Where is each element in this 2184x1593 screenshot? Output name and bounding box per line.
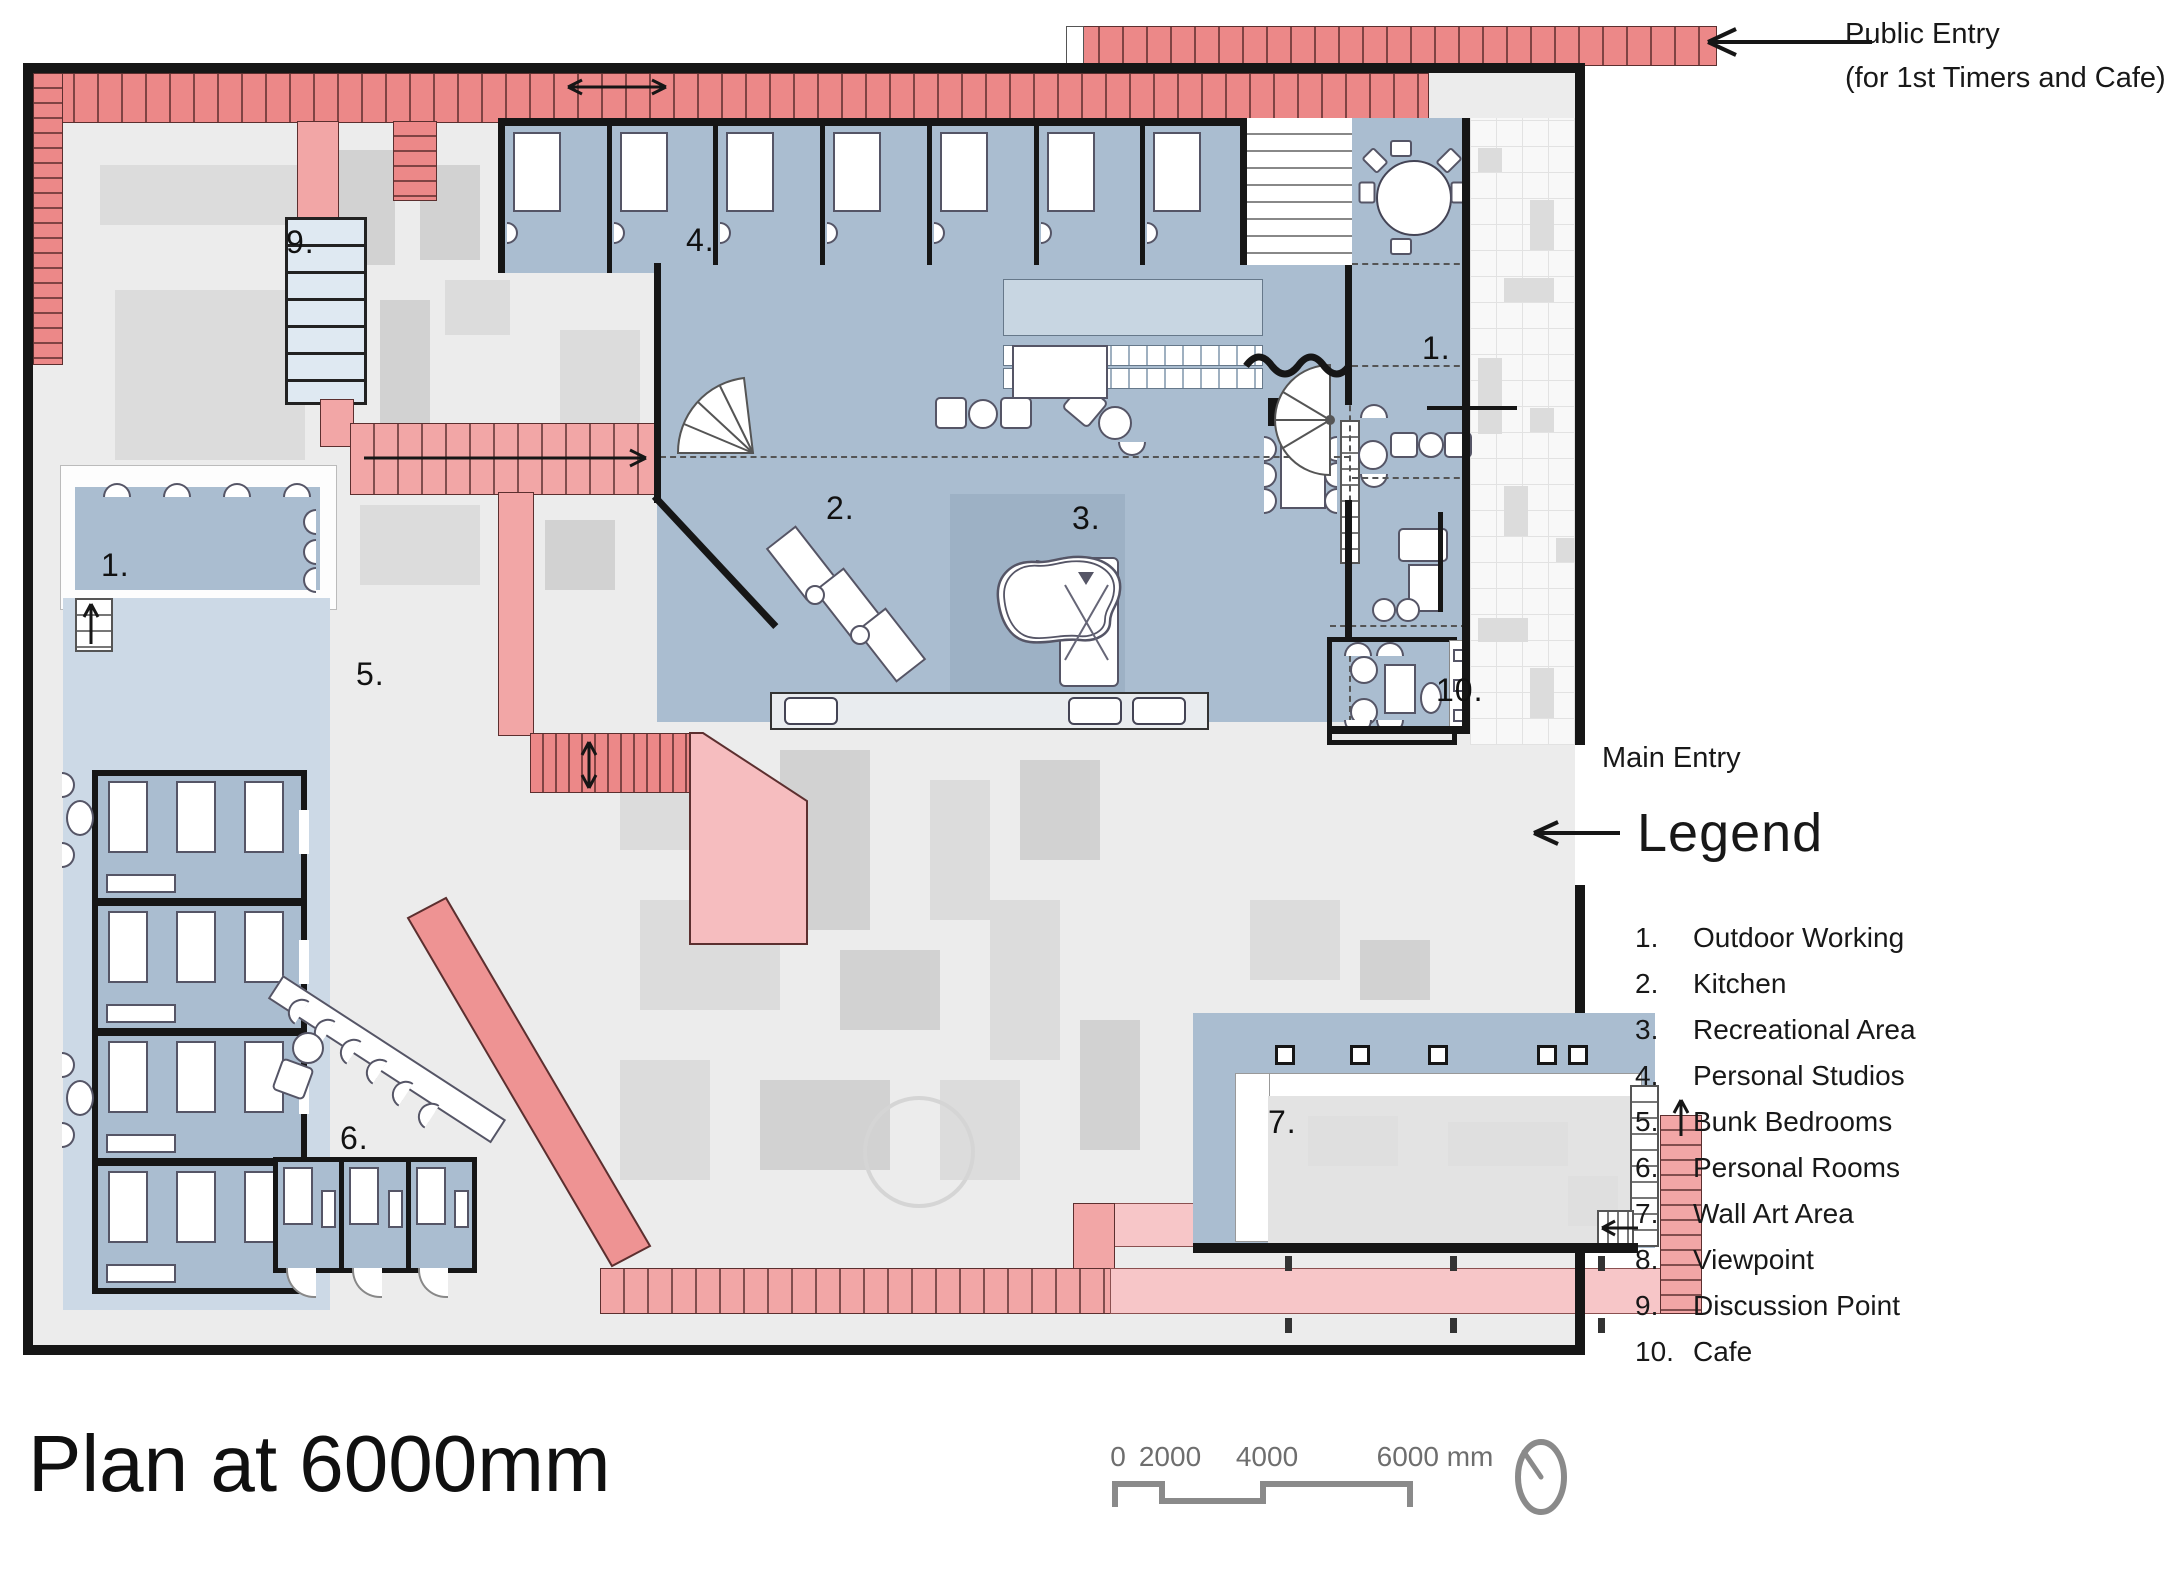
bed-icon bbox=[176, 1171, 216, 1243]
dresser-icon bbox=[106, 1264, 176, 1283]
legend-item-label: Personal Rooms bbox=[1693, 1152, 1900, 1198]
bed-icon bbox=[176, 781, 216, 853]
legend-item-number: 7. bbox=[1635, 1198, 1693, 1244]
scale-tick-label: 4000 bbox=[1236, 1441, 1298, 1473]
long-table bbox=[1003, 279, 1263, 336]
area-label: 5. bbox=[356, 656, 385, 693]
area-label: 1. bbox=[101, 547, 130, 584]
studio-room bbox=[1145, 126, 1247, 273]
context-shape bbox=[990, 900, 1060, 1060]
bunk-bedroom bbox=[92, 1030, 307, 1164]
area-label: 6. bbox=[340, 1120, 369, 1157]
walkway-steps bbox=[1066, 26, 1084, 66]
area-label: 4. bbox=[686, 222, 715, 259]
area-label: 8. bbox=[732, 860, 761, 897]
scale-bar bbox=[1115, 1484, 1410, 1507]
context-shape bbox=[780, 750, 870, 930]
dresser-icon bbox=[106, 1004, 176, 1023]
personal-rooms bbox=[273, 1157, 477, 1273]
legend-item-label: Discussion Point bbox=[1693, 1290, 1900, 1336]
stool-icon bbox=[850, 625, 870, 645]
public-entry-walkway bbox=[1075, 26, 1717, 66]
table-icon bbox=[66, 800, 94, 836]
sink-icon bbox=[827, 222, 838, 244]
column-tick bbox=[1285, 1256, 1292, 1271]
car-icon bbox=[1132, 697, 1186, 725]
north-indicator-icon bbox=[1518, 1442, 1564, 1512]
context-shape bbox=[620, 1060, 710, 1180]
personal-studios bbox=[498, 118, 1247, 273]
legend-item-number: 10. bbox=[1635, 1336, 1693, 1382]
bunk-bedroom bbox=[92, 900, 307, 1034]
main-entry-label: Main Entry bbox=[1602, 742, 1741, 775]
chair-icon bbox=[303, 539, 316, 565]
context-shape bbox=[930, 780, 990, 920]
bed-icon bbox=[108, 781, 148, 853]
table-icon bbox=[292, 1032, 324, 1064]
column-tick bbox=[1598, 1318, 1605, 1333]
legend-item: 7. Wall Art Area bbox=[1635, 1198, 2155, 1244]
context-shape bbox=[445, 280, 510, 335]
context-shape bbox=[1080, 1020, 1140, 1150]
personal-room bbox=[411, 1162, 472, 1268]
table-icon bbox=[1418, 432, 1444, 458]
legend-item-label: Viewpoint bbox=[1693, 1244, 1814, 1290]
bed-icon bbox=[176, 911, 216, 983]
door-gap bbox=[299, 940, 309, 984]
legend-item: 1. Outdoor Working bbox=[1635, 922, 2155, 968]
bed-icon bbox=[513, 132, 561, 212]
bed-icon bbox=[176, 1041, 216, 1113]
armchair-icon bbox=[935, 397, 967, 429]
car-icon bbox=[784, 697, 838, 725]
legend-item-number: 8. bbox=[1635, 1244, 1693, 1290]
chair-icon bbox=[1376, 642, 1404, 656]
car-icon bbox=[1068, 697, 1122, 725]
wall-segment bbox=[1327, 726, 1470, 734]
armchair-icon bbox=[1000, 397, 1032, 429]
legend-item: 3. Recreational Area bbox=[1635, 1014, 2155, 1060]
area-label: 1. bbox=[1422, 330, 1451, 367]
wall-art-wall bbox=[1193, 1243, 1638, 1253]
legend-item: 5. Bunk Bedrooms bbox=[1635, 1106, 2155, 1152]
column-tick bbox=[1450, 1318, 1457, 1333]
building-border-top bbox=[23, 63, 1585, 73]
legend-item-number: 5. bbox=[1635, 1106, 1693, 1152]
bed-icon bbox=[940, 132, 988, 212]
context-shape bbox=[1360, 940, 1430, 1000]
chair-icon bbox=[1390, 238, 1412, 255]
legend-item: 2. Kitchen bbox=[1635, 968, 2155, 1014]
column-tick bbox=[1598, 1256, 1605, 1271]
seat-icon bbox=[1390, 432, 1418, 458]
grid-cell bbox=[1530, 668, 1554, 718]
zone-dashed-line bbox=[1352, 365, 1470, 367]
bed-icon bbox=[244, 781, 284, 853]
table-icon bbox=[66, 1080, 94, 1116]
building-border-right bbox=[1575, 1248, 1585, 1355]
dresser-icon bbox=[106, 874, 176, 893]
legend-item-label: Personal Studios bbox=[1693, 1060, 1905, 1106]
stair-flight bbox=[393, 121, 437, 201]
legend-item-number: 4. bbox=[1635, 1060, 1693, 1106]
area-label: 10. bbox=[1436, 672, 1483, 709]
context-shape bbox=[640, 900, 780, 1010]
door-gap bbox=[299, 810, 309, 854]
page: 9.4.1.2.3.1.5.10.8.6.7. Public Entry (fo… bbox=[0, 0, 2184, 1593]
grid-cell bbox=[1504, 278, 1554, 302]
column-icon bbox=[1568, 1045, 1588, 1065]
dresser-icon bbox=[106, 1134, 176, 1153]
top-corridor bbox=[50, 73, 1429, 123]
column-tick bbox=[1285, 1318, 1292, 1333]
wall-segment bbox=[654, 263, 661, 503]
coffee-table-icon bbox=[968, 399, 998, 429]
area-label: 7. bbox=[1268, 1104, 1297, 1141]
bed-icon bbox=[108, 1171, 148, 1243]
zone-dashed-line bbox=[1352, 477, 1470, 479]
bed-icon bbox=[833, 132, 881, 212]
wall-art-court bbox=[1268, 1096, 1635, 1245]
sink-icon bbox=[934, 222, 945, 244]
legend-item-label: Outdoor Working bbox=[1693, 922, 1904, 968]
bunk-bedroom bbox=[92, 770, 307, 904]
main-stair bbox=[1240, 118, 1359, 265]
column-icon bbox=[1350, 1045, 1370, 1065]
legend-item-label: Cafe bbox=[1693, 1336, 1752, 1382]
column-tick bbox=[1450, 1256, 1457, 1271]
outdoor-working-room bbox=[1352, 118, 1470, 265]
context-circle bbox=[863, 1096, 975, 1208]
corner-stair bbox=[1597, 1210, 1634, 1247]
legend-list: 1. Outdoor Working 2. Kitchen 3. Recreat… bbox=[1635, 922, 2155, 1382]
legend-item-label: Kitchen bbox=[1693, 968, 1786, 1014]
walkway-stair bbox=[75, 598, 113, 652]
cafe-table bbox=[1384, 664, 1416, 714]
column-icon bbox=[1275, 1045, 1295, 1065]
personal-room bbox=[278, 1162, 344, 1268]
legend-item-label: Bunk Bedrooms bbox=[1693, 1106, 1892, 1152]
corridor-link bbox=[297, 121, 339, 219]
stool-icon bbox=[1372, 598, 1396, 622]
grid-cell bbox=[1478, 358, 1502, 434]
bed-icon bbox=[244, 911, 284, 983]
studio-room bbox=[718, 126, 825, 273]
area-label: 2. bbox=[826, 490, 855, 527]
context-shape bbox=[360, 505, 480, 585]
legend-item: 10. Cafe bbox=[1635, 1336, 2155, 1382]
legend-item-label: Wall Art Area bbox=[1693, 1198, 1854, 1244]
bed-icon bbox=[349, 1167, 379, 1225]
left-corridor bbox=[33, 73, 63, 365]
studio-room bbox=[825, 126, 932, 273]
parking-strip bbox=[770, 692, 1209, 730]
scale-tick-label: 0 bbox=[1110, 1441, 1126, 1473]
corridor-west bbox=[350, 423, 664, 495]
cafe-table-icon bbox=[1350, 656, 1378, 684]
column-icon bbox=[1428, 1045, 1448, 1065]
context-shape bbox=[840, 950, 940, 1030]
corridor-south-east bbox=[1110, 1268, 1702, 1314]
building-border-left bbox=[23, 63, 33, 1355]
chair-icon bbox=[1390, 140, 1412, 157]
bed-icon bbox=[108, 1041, 148, 1113]
page-title: Plan at 6000mm bbox=[28, 1418, 611, 1510]
personal-room bbox=[344, 1162, 410, 1268]
corridor-vertical bbox=[498, 492, 534, 736]
legend-item-number: 3. bbox=[1635, 1014, 1693, 1060]
context-shape bbox=[1448, 1122, 1568, 1166]
bed-icon bbox=[283, 1167, 313, 1225]
grid-cell bbox=[1530, 200, 1554, 250]
zone-dashed-line bbox=[1352, 263, 1470, 265]
grid-cell bbox=[1530, 408, 1554, 432]
desk-icon bbox=[321, 1190, 336, 1228]
studio-room bbox=[1039, 126, 1146, 273]
sink-icon bbox=[720, 222, 731, 244]
closet bbox=[1012, 345, 1108, 399]
legend-item-number: 6. bbox=[1635, 1152, 1693, 1198]
context-shape bbox=[100, 165, 300, 225]
grid-cell bbox=[1504, 486, 1528, 536]
wall-segment bbox=[1345, 265, 1352, 405]
grid-cell bbox=[1478, 148, 1502, 172]
bench-line bbox=[1427, 406, 1517, 410]
context-shape bbox=[1308, 1116, 1398, 1166]
area-label: 3. bbox=[1072, 500, 1101, 537]
table-icon bbox=[1358, 440, 1388, 470]
desk-icon bbox=[388, 1190, 403, 1228]
sink-icon bbox=[1041, 222, 1052, 244]
chair-icon bbox=[1361, 147, 1389, 175]
bed-icon bbox=[726, 132, 774, 212]
context-shape bbox=[1020, 760, 1100, 860]
corridor-link bbox=[320, 399, 354, 447]
sink-icon bbox=[614, 222, 625, 244]
legend-item: 8. Viewpoint bbox=[1635, 1244, 2155, 1290]
chair-icon bbox=[303, 509, 316, 535]
corridor-south bbox=[600, 1268, 1112, 1314]
stool-icon bbox=[1396, 598, 1420, 622]
studio-room bbox=[932, 126, 1039, 273]
desk-icon bbox=[454, 1190, 469, 1228]
legend-item-number: 1. bbox=[1635, 922, 1693, 968]
sink-icon bbox=[507, 222, 518, 244]
legend-item: 4. Personal Studios bbox=[1635, 1060, 2155, 1106]
bed-icon bbox=[416, 1167, 446, 1225]
scale-tick-label: 2000 bbox=[1139, 1441, 1201, 1473]
coffee-table-icon bbox=[1098, 406, 1132, 440]
round-table-icon bbox=[1376, 160, 1452, 236]
legend-item-label: Recreational Area bbox=[1693, 1014, 1916, 1060]
public-entry-sublabel: (for 1st Timers and Cafe) bbox=[1845, 62, 2166, 95]
column-icon bbox=[1537, 1045, 1557, 1065]
foosball-table bbox=[1059, 557, 1119, 687]
scale-tick-label: 6000 mm bbox=[1377, 1441, 1494, 1473]
dining-table bbox=[1280, 428, 1326, 509]
building-border-bottom bbox=[23, 1345, 1585, 1355]
wall-segment bbox=[1345, 500, 1352, 640]
context-shape bbox=[115, 290, 305, 460]
chair-icon bbox=[1344, 642, 1372, 656]
zone-dashed-line bbox=[660, 456, 1350, 458]
wall-segment bbox=[1268, 398, 1282, 426]
legend-item-number: 2. bbox=[1635, 968, 1693, 1014]
context-shape bbox=[1250, 900, 1340, 980]
legend-item: 9. Discussion Point bbox=[1635, 1290, 2155, 1336]
bed-icon bbox=[620, 132, 668, 212]
context-shape bbox=[545, 520, 615, 590]
wall-segment bbox=[1462, 118, 1470, 732]
legend-item: 6. Personal Rooms bbox=[1635, 1152, 2155, 1198]
wall-segment bbox=[1438, 512, 1443, 612]
legend-item-number: 9. bbox=[1635, 1290, 1693, 1336]
bed-icon bbox=[1153, 132, 1201, 212]
public-entry-label: Public Entry bbox=[1845, 18, 2000, 51]
studio-room bbox=[505, 126, 612, 273]
bed-icon bbox=[108, 911, 148, 983]
legend-heading: Legend bbox=[1637, 802, 1823, 864]
sink-icon bbox=[1147, 222, 1158, 244]
stool-icon bbox=[805, 585, 825, 605]
grid-cell bbox=[1478, 618, 1528, 642]
chair-icon bbox=[1359, 182, 1376, 204]
chair-icon bbox=[303, 567, 316, 593]
viewpoint-stair-run bbox=[530, 733, 694, 793]
building-border-right bbox=[1575, 63, 1585, 745]
area-label: 9. bbox=[286, 224, 315, 261]
building-border-right bbox=[1575, 885, 1585, 1013]
wall-art-walkway-arm bbox=[1235, 1073, 1270, 1242]
bed-icon bbox=[1047, 132, 1095, 212]
green-wall-grid bbox=[1470, 118, 1582, 745]
